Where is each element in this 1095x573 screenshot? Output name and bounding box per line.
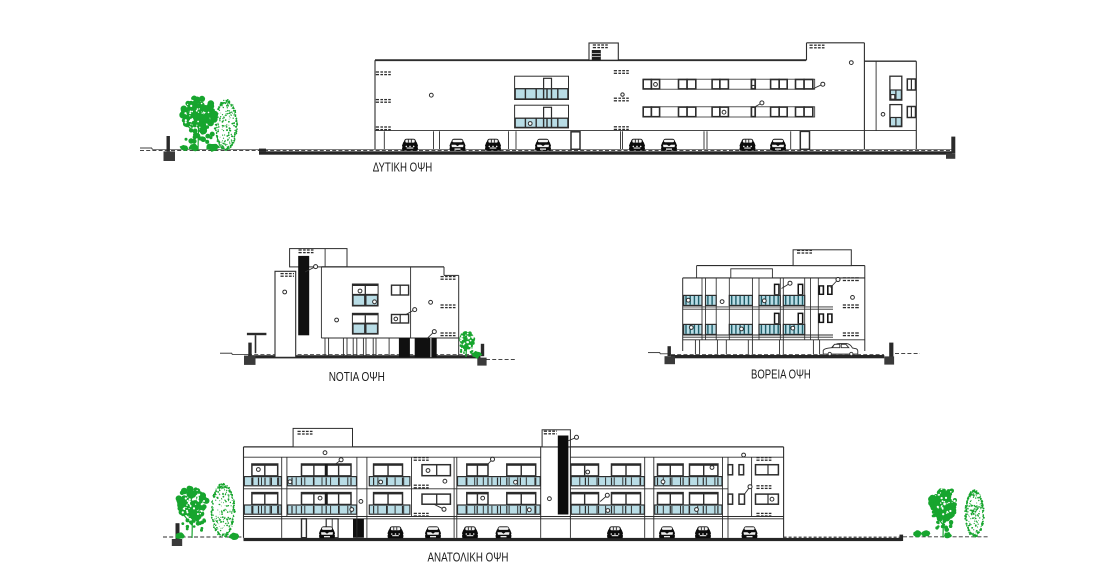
svg-text:ΑΝΑΤΟΛΙΚΗ ΟΨΗ: ΑΝΑΤΟΛΙΚΗ ΟΨΗ — [428, 549, 509, 564]
svg-text:ΔΥΤΙΚΗ ΟΨΗ: ΔΥΤΙΚΗ ΟΨΗ — [373, 159, 433, 174]
svg-text:ΝΟΤΙΑ ΟΨΗ: ΝΟΤΙΑ ΟΨΗ — [329, 369, 385, 384]
svg-text:ΒΟΡΕΙΑ ΟΨΗ: ΒΟΡΕΙΑ ΟΨΗ — [751, 366, 811, 381]
